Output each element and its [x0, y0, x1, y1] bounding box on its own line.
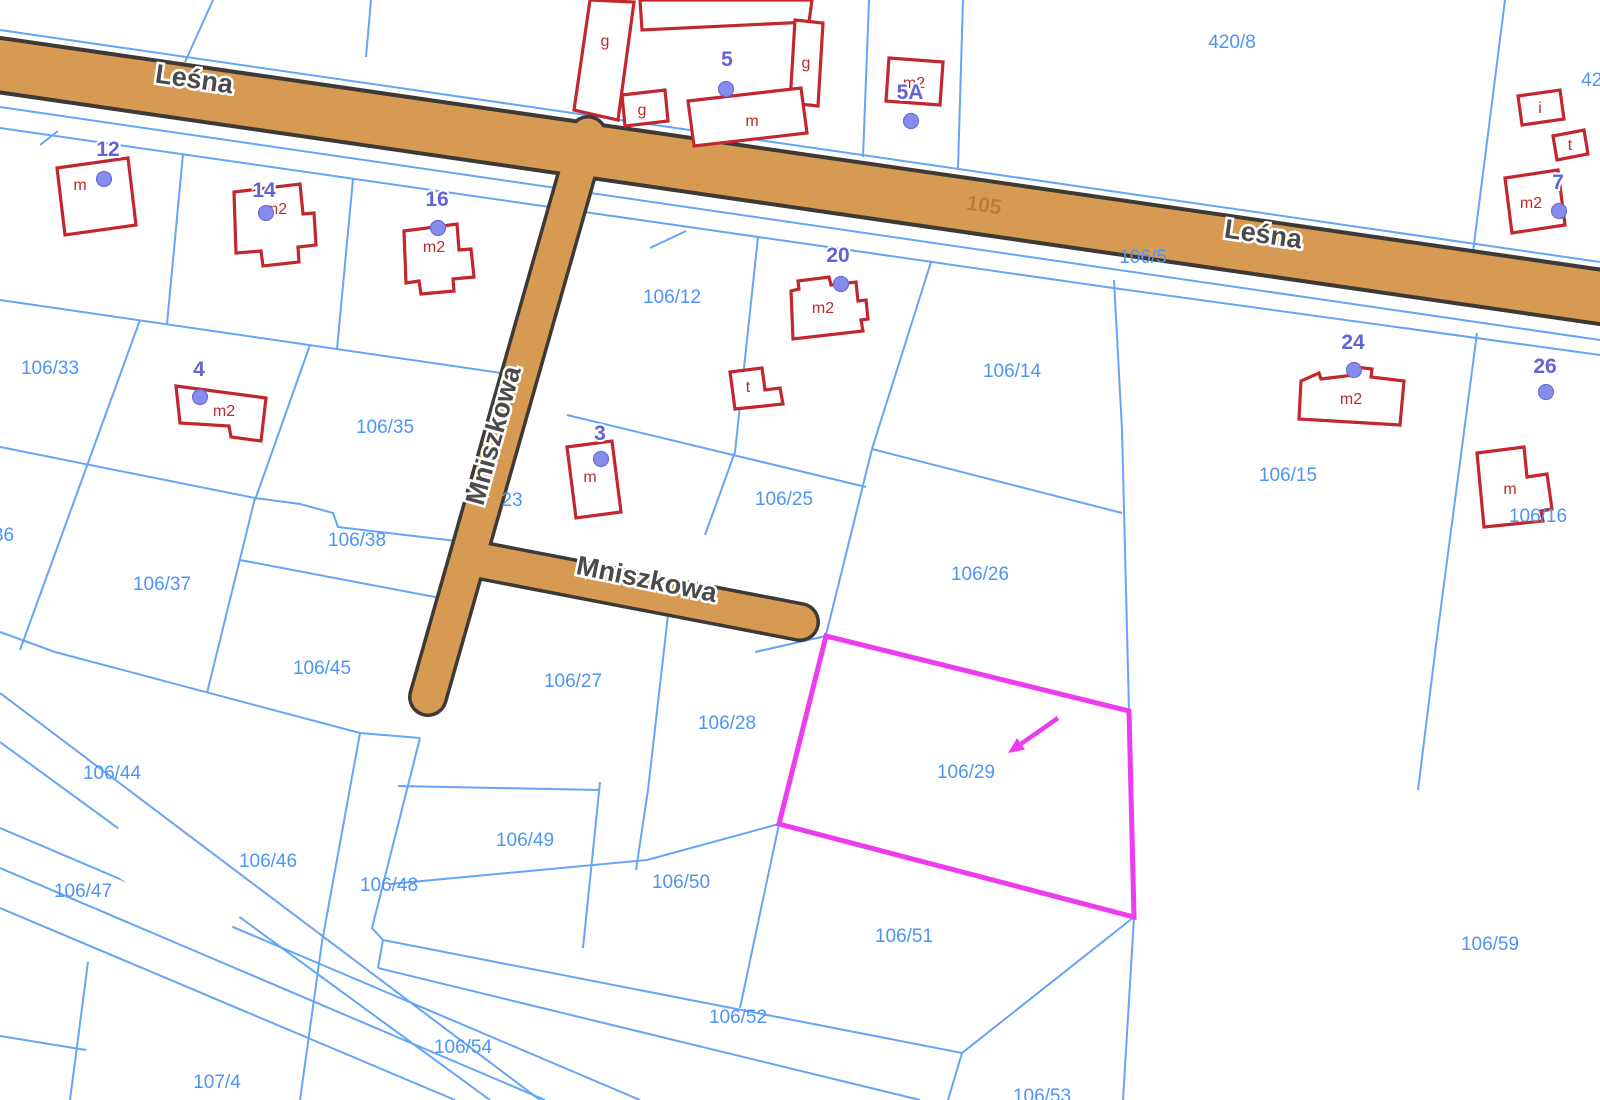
cadastral-map[interactable]: 105mm2m2m2mm2tgggmm2itm2m2mLeśnaLeśnaMni… [0, 0, 1600, 1100]
parcel-label-106-29: 106/29 [937, 762, 995, 783]
parcel-label-106-53: 106/53 [1013, 1086, 1071, 1100]
address-number-14: 14 [252, 179, 276, 202]
address-dot-3 [594, 452, 609, 467]
house-12 [57, 158, 136, 235]
house-26-label: m [1503, 481, 1516, 498]
parcel-label-106-14: 106/14 [983, 361, 1042, 382]
parcel-label-106-38: 106/38 [328, 530, 386, 551]
house-12-label: m [73, 177, 86, 194]
address-number-24: 24 [1341, 331, 1365, 354]
parcel-label-106-37: 106/37 [133, 574, 191, 595]
address-number-5: 5 [721, 48, 733, 71]
parcel-label-106-15: 106/15 [1259, 465, 1317, 486]
parcel-label-420-8: 420/8 [1208, 32, 1256, 53]
address-dot-20 [834, 277, 849, 292]
parcel-label-106-50: 106/50 [652, 872, 710, 893]
address-dot-14 [259, 206, 274, 221]
address-number-4: 4 [193, 358, 205, 381]
house-24-label: m2 [1340, 391, 1362, 408]
parcel-label-106-16: 106/16 [1509, 506, 1567, 527]
parcel-label-106-44: 106/44 [83, 763, 142, 784]
address-number-12: 12 [96, 138, 119, 161]
address-dot-5a [904, 114, 919, 129]
address-number-3: 3 [594, 422, 606, 445]
address-number-7: 7 [1552, 171, 1564, 194]
parcel-label-421: 421 [1581, 70, 1600, 91]
address-number-26: 26 [1533, 355, 1556, 378]
parcel-label-107-4: 107/4 [193, 1072, 241, 1093]
parcel-label-106-48: 106/48 [360, 875, 418, 896]
address-dot-4 [193, 390, 208, 405]
address-dot-16 [431, 221, 446, 236]
garage-right-label: g [802, 55, 811, 72]
parcel-label-106-35: 106/35 [356, 417, 414, 438]
parcel-label-106-54: 106/54 [434, 1037, 493, 1058]
garage-small-label: g [638, 102, 647, 119]
address-dot-5 [719, 82, 734, 97]
house-16-label: m2 [423, 239, 445, 256]
address-number-5a: 5A [897, 81, 924, 104]
parcel-label-106-49: 106/49 [496, 830, 554, 851]
parcel-label-106-25: 106/25 [755, 489, 813, 510]
parcel-label-106-5: 106/5 [1119, 247, 1167, 268]
parcel-label-106-52: 106/52 [709, 1007, 767, 1028]
house-7-label: m2 [1520, 195, 1542, 212]
address-dot-12 [97, 172, 112, 187]
parcel-label-106-46: 106/46 [239, 851, 297, 872]
building-t-right-label: t [1568, 137, 1573, 154]
parcel-label-106-27: 106/27 [544, 671, 602, 692]
building-t-mid-label: t [746, 379, 751, 396]
house-20-label: m2 [812, 300, 834, 317]
map-canvas[interactable]: 105mm2m2m2mm2tgggmm2itm2m2mLeśnaLeśnaMni… [0, 0, 1600, 1100]
address-number-16: 16 [425, 188, 448, 211]
parcel-label-106-33: 106/33 [21, 358, 79, 379]
parcel-label-106-36: 106/36 [0, 525, 14, 546]
parcel-label-106-12: 106/12 [643, 287, 701, 308]
address-number-20: 20 [826, 244, 849, 267]
address-dot-7 [1552, 204, 1567, 219]
parcel-label-106-26: 106/26 [951, 564, 1009, 585]
parcel-label-106-59: 106/59 [1461, 934, 1519, 955]
parcel-label-106-28: 106/28 [698, 713, 756, 734]
address-dot-24 [1347, 363, 1362, 378]
parcel-label-106-47: 106/47 [54, 881, 112, 902]
building-i-label: i [1538, 100, 1542, 117]
parcel-label-106-51: 106/51 [875, 926, 933, 947]
garage-tall-left-label: g [601, 33, 610, 50]
parcel-label-23: 23 [501, 490, 522, 511]
parcel-label-106-45: 106/45 [293, 658, 351, 679]
house-4-label: m2 [213, 403, 235, 420]
house-m-top-label: m [745, 113, 758, 130]
address-dot-26 [1539, 385, 1554, 400]
house-3-label: m [583, 469, 596, 486]
